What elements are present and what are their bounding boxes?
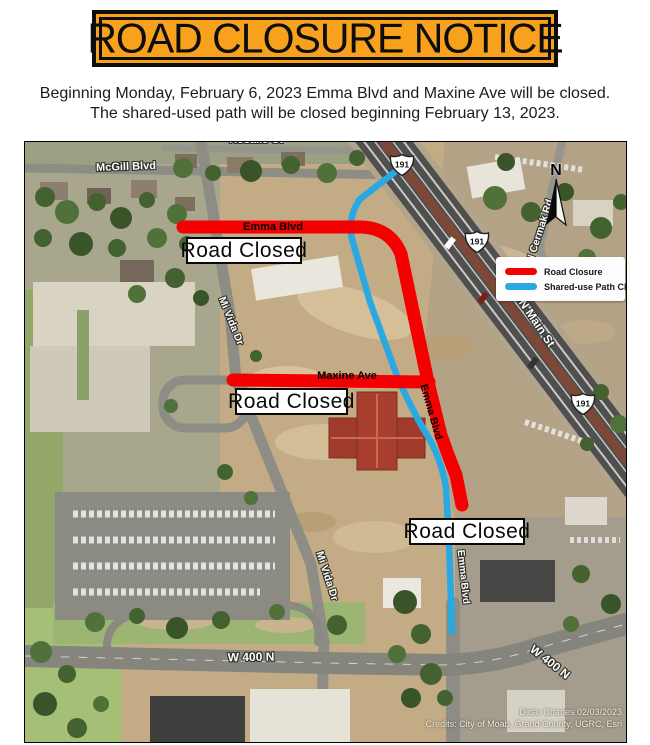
road-closure-notice-flyer: ROAD CLOSURE NOTICE Beginning Monday, Fe…	[0, 0, 650, 745]
closure-label-maxine-ave: Maxine Ave	[317, 370, 377, 382]
street-label-mcgill-blvd: McGill Blvd	[96, 160, 156, 174]
closure-map: McGill Blvd Rosalie Ct Mi Vida Dr Mi Vid…	[24, 141, 627, 743]
svg-text:191: 191	[395, 160, 409, 170]
highway-191-shield-2: 191	[464, 230, 490, 254]
svg-text:191: 191	[576, 399, 590, 409]
street-label-w-400-n-1: W 400 N	[228, 650, 275, 665]
road-closure-swatch	[505, 268, 537, 275]
credits-line-2: Credits: City of Moab, Grand County, UGR…	[426, 718, 622, 730]
street-label-rosalie-ct: Rosalie Ct	[229, 141, 283, 146]
page-title: ROAD CLOSURE NOTICE	[87, 15, 562, 63]
credits-line-1: Didar Charles 02/03/2023	[426, 706, 622, 718]
map-credits: Didar Charles 02/03/2023 Credits: City o…	[426, 706, 622, 730]
highway-191-shield-1: 191	[389, 153, 415, 177]
subtitle-line-2: The shared-used path will be closed begi…	[0, 104, 650, 124]
notice-subtitle: Beginning Monday, February 6, 2023 Emma …	[0, 84, 650, 124]
legend-item-shared-use-path-closure: Shared-use Path Closure	[505, 279, 625, 294]
shared-use-path-swatch	[505, 283, 537, 290]
road-closed-box-1: Road Closed	[186, 237, 302, 264]
road-closed-box-2: Road Closed	[235, 388, 348, 415]
subtitle-line-1: Beginning Monday, February 6, 2023 Emma …	[0, 84, 650, 104]
svg-text:191: 191	[470, 237, 484, 247]
highway-191-shield-3: 191	[570, 392, 596, 416]
map-legend: Road Closure Shared-use Path Closure	[496, 257, 625, 301]
north-arrow-icon	[544, 179, 568, 231]
closure-label-emma-blvd-top: Emma Blvd	[243, 221, 303, 233]
road-closed-box-3: Road Closed	[409, 518, 525, 545]
notice-banner: ROAD CLOSURE NOTICE	[92, 10, 558, 67]
north-arrow-label: N	[543, 162, 569, 180]
legend-item-road-closure: Road Closure	[505, 264, 625, 279]
